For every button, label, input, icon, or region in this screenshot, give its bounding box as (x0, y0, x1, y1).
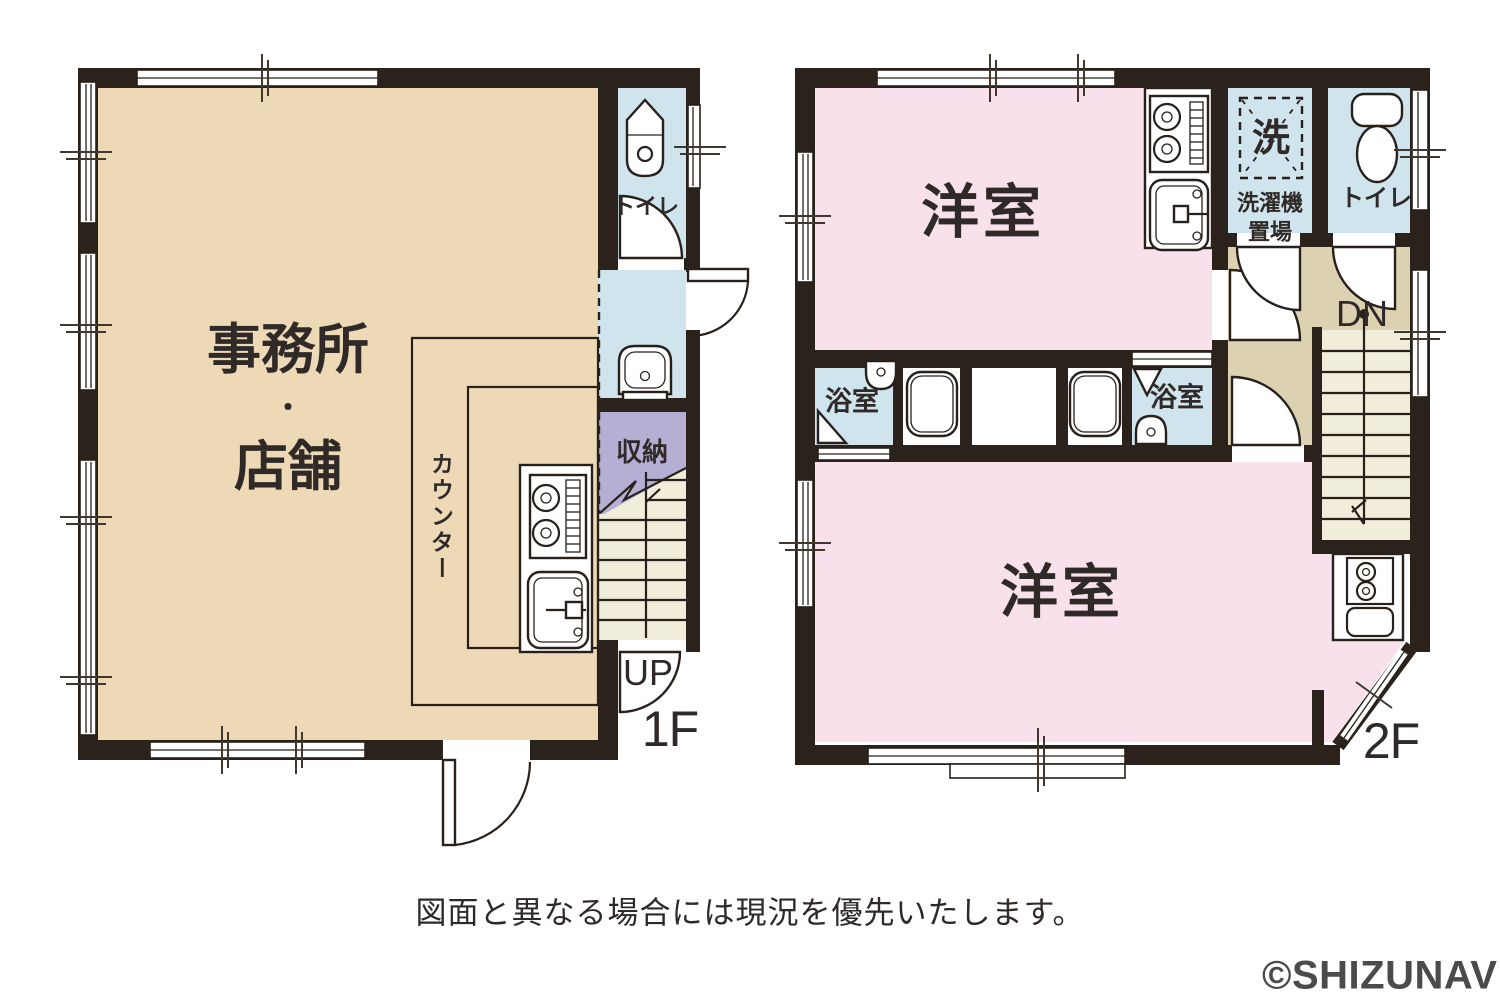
stairs-down-label: DN (1336, 296, 1388, 332)
washer-symbol-label: 洗 (1252, 120, 1290, 158)
window-icon-right-hall-2f (1412, 270, 1428, 397)
disclaimer-text: 図面と異なる場合には現況を優先いたします。 (416, 898, 1085, 929)
stove-icon-2f-top (1150, 96, 1208, 172)
bath-sink-icon-right (1136, 416, 1166, 444)
window-icon-bottom-2f (868, 748, 1125, 778)
bathtub-icon-right (1070, 372, 1120, 436)
kitchen-sink-icon-1f (528, 572, 588, 648)
stove-icon-2f-bottom (1333, 554, 1403, 640)
toilet-label-1f: トイレ (613, 196, 679, 218)
toilet-icon-2f (1352, 94, 1402, 182)
room-label-western-top: 洋室 (921, 184, 1045, 242)
washer-place-line2: 置場 (1237, 218, 1303, 247)
bathtub-icon-left (907, 372, 957, 436)
window-icon-top-1f (137, 70, 378, 86)
counter-label: カウンター (429, 452, 452, 582)
window-icon-bath-right-2f (1132, 352, 1212, 366)
washer-place-label: 洗濯機 置場 (1237, 189, 1303, 246)
bathroom-label-left: 浴室 (825, 389, 879, 416)
floorplan-page: 事務所 ・ 店舗 カウンター トイレ 収納 UP 1F 洋室 洋室 浴室 浴室 … (0, 0, 1500, 1000)
room-label-western-bottom: 洋室 (1000, 564, 1124, 622)
floor-label-1f: 1F (642, 704, 698, 754)
sink-icon-2f-top (1150, 180, 1208, 250)
toilet-label-2f: トイレ (1340, 187, 1412, 211)
washer-place-line1: 洗濯機 (1237, 189, 1303, 218)
bath-sink-icon-left (866, 361, 896, 389)
stairs-up-label: UP (623, 655, 673, 691)
storage-label: 収納 (616, 439, 668, 465)
washbasin-icon-1f (619, 346, 671, 400)
floor-label-2f: 2F (1363, 716, 1419, 766)
door-swing-icon-main-entrance-1f (443, 760, 530, 845)
room-label-office: 事務所 (207, 323, 369, 377)
window-icon-bottom-1f (150, 742, 365, 758)
room-label-office-dot: ・ (274, 394, 302, 422)
middle-room-area (972, 368, 1056, 445)
bathroom-label-right: 浴室 (1150, 385, 1204, 412)
window-icon-bath-left-2f (818, 448, 890, 460)
room-label-shop: 店舗 (234, 440, 342, 494)
floor2-plan (779, 54, 1446, 792)
watermark-text: ©SHIZUNAVI (1262, 954, 1500, 999)
kitchen-stove-icon-1f (530, 475, 586, 558)
